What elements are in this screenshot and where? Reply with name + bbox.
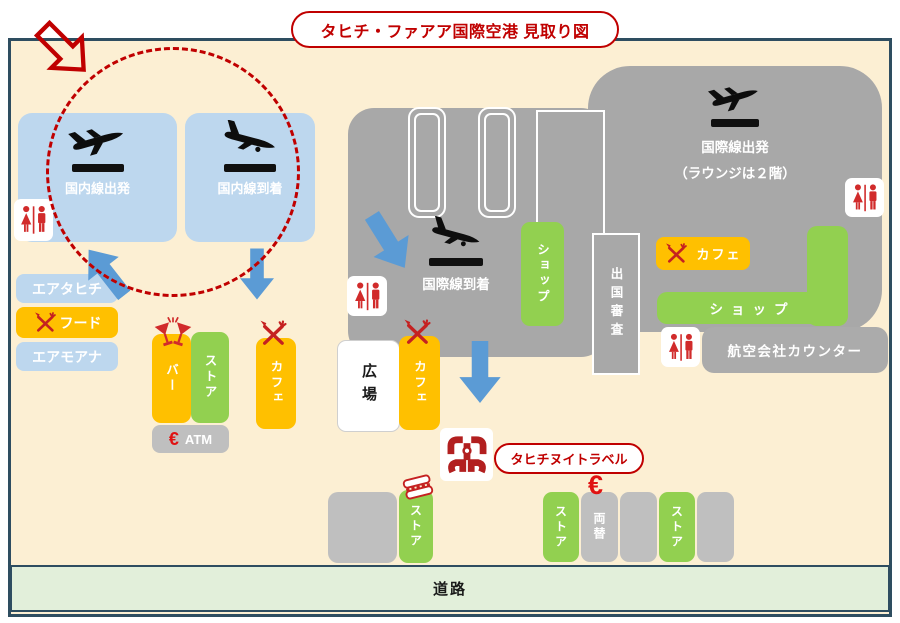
wine-glasses-icon bbox=[154, 317, 192, 354]
euro-icon: € bbox=[169, 429, 179, 450]
page-title-text: タヒチ・ファアア国際空港 見取り図 bbox=[321, 18, 590, 42]
runway-bar bbox=[224, 164, 276, 172]
utensils-icon bbox=[256, 319, 290, 354]
store-label: ストア bbox=[553, 505, 570, 550]
travel-agency-label: タヒチヌイトラベル bbox=[510, 449, 627, 468]
airline-counter-label: 航空会社カウンター bbox=[728, 340, 863, 360]
runway-bar bbox=[711, 119, 759, 127]
arrow-down-icon bbox=[240, 240, 274, 303]
corridor-line bbox=[536, 110, 605, 112]
plane-takeoff-icon bbox=[66, 120, 130, 160]
arrow-down-icon bbox=[458, 336, 502, 403]
jet-bridge bbox=[478, 107, 516, 218]
cafe-label: カフェ bbox=[696, 244, 741, 263]
sandwich-icon bbox=[400, 473, 436, 506]
domestic-arrival-label: 国内線到着 bbox=[217, 178, 282, 197]
restroom-icon bbox=[845, 178, 884, 217]
air-moana-box: エアモアナ bbox=[16, 342, 118, 371]
tiki-logo-icon bbox=[445, 433, 489, 477]
shop-label: ショップ bbox=[710, 298, 796, 318]
cafe-box-departure: カフェ bbox=[656, 237, 750, 270]
food-box: フード bbox=[16, 307, 118, 338]
plane-takeoff-icon bbox=[706, 78, 764, 116]
international-departure-label: 国際線出発 bbox=[701, 136, 769, 156]
cafe-label: カフェ bbox=[267, 360, 286, 407]
tahiti-nui-logo bbox=[440, 428, 493, 481]
shop-box-main: ショップ bbox=[657, 292, 848, 324]
air-moana-label: エアモアナ bbox=[32, 347, 102, 367]
immigration-box: 出国審査 bbox=[592, 233, 640, 375]
restroom-icon bbox=[661, 327, 700, 367]
atm-box: € ATM bbox=[152, 425, 229, 453]
store-box-south-3: ストア bbox=[659, 492, 695, 562]
plane-landing-icon bbox=[218, 120, 282, 160]
jet-bridge bbox=[408, 107, 446, 218]
plaza-box: 広場 bbox=[337, 340, 400, 432]
store-label: ストア bbox=[408, 504, 425, 549]
utensils-icon bbox=[33, 311, 57, 335]
page-title: タヒチ・ファアア国際空港 見取り図 bbox=[291, 11, 619, 48]
plane-landing-icon bbox=[426, 216, 486, 254]
restroom-icon bbox=[14, 199, 53, 241]
international-arrival-label: 国際線到着 bbox=[422, 273, 490, 293]
shop-box-inner: ショップ bbox=[521, 222, 564, 326]
atm-label: ATM bbox=[185, 432, 212, 447]
plaza-label: 広場 bbox=[358, 363, 379, 409]
shop-unit-box bbox=[697, 492, 734, 562]
store-label: ストア bbox=[201, 354, 220, 401]
runway-bar bbox=[72, 164, 124, 172]
international-departure-sign: 国際線出発 （ラウンジは２階） bbox=[655, 78, 815, 182]
currency-exchange-label: 両替 bbox=[591, 512, 608, 542]
food-label: フード bbox=[60, 313, 102, 333]
runway-bar bbox=[429, 258, 483, 266]
road-strip: 道路 bbox=[10, 565, 890, 612]
store-label: ストア bbox=[669, 505, 686, 550]
travel-agency-box: タヒチヌイトラベル bbox=[494, 443, 644, 474]
pointer-arrow-icon bbox=[30, 16, 96, 82]
shop-unit-box bbox=[620, 492, 657, 562]
domestic-departure-label: 国内線出発 bbox=[65, 178, 130, 197]
shop-label: ショップ bbox=[533, 243, 552, 305]
store-box-west: ストア bbox=[191, 332, 229, 423]
corridor-line bbox=[603, 110, 605, 233]
utensils-icon bbox=[400, 318, 434, 353]
bar-label: バー bbox=[162, 363, 181, 394]
restroom-icon bbox=[347, 276, 387, 316]
road-label: 道路 bbox=[433, 578, 467, 599]
airline-counter-box: 航空会社カウンター bbox=[702, 327, 888, 373]
shop-unit-box bbox=[328, 492, 397, 563]
lounge-note-label: （ラウンジは２階） bbox=[674, 162, 796, 182]
euro-icon: € bbox=[588, 470, 603, 501]
store-box-south-2: ストア bbox=[543, 492, 579, 562]
immigration-label: 出国審査 bbox=[607, 267, 626, 341]
cafe-label: カフェ bbox=[410, 360, 429, 407]
utensils-icon bbox=[664, 242, 688, 266]
domestic-arrival-zone: 国内線到着 bbox=[185, 113, 315, 242]
currency-exchange-box: 両替 bbox=[581, 492, 618, 562]
